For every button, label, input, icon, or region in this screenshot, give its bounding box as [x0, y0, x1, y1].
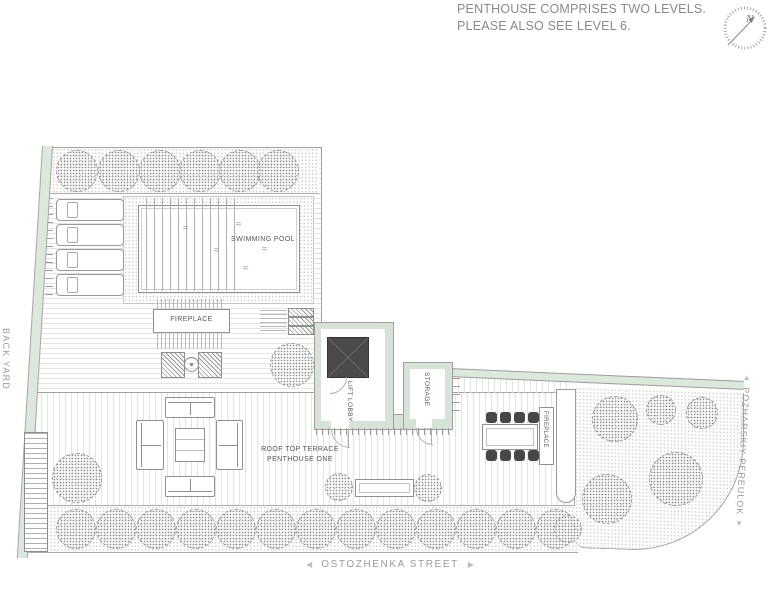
lounger-headrest: [67, 202, 78, 218]
bench: [288, 326, 314, 335]
roof-plan-drawing: ≈ ≈ ≈ ≈ ≈ SWIMMING POOL FIREPLACE LIFT L…: [0, 0, 775, 600]
lift-car: [327, 337, 369, 378]
lounger-headrest: [67, 252, 78, 268]
coffee-table: [175, 428, 205, 462]
dining-chair: [528, 450, 539, 461]
tree-icon: [592, 396, 638, 442]
tree-icon: [270, 343, 314, 387]
armchair: [198, 352, 222, 378]
sofa: [216, 420, 243, 470]
bench: [288, 317, 314, 326]
tree-icon: [56, 509, 96, 549]
sofa: [165, 397, 215, 418]
bench: [288, 308, 314, 317]
sun-lounger: [56, 199, 124, 221]
pozharskiy-text: POZHARSKIY PEREULOK: [734, 387, 751, 516]
arrow-left-icon: ◀: [306, 561, 312, 569]
tree-icon: [52, 453, 102, 503]
tree-icon: [56, 150, 98, 192]
sun-lounger: [56, 249, 124, 271]
tree-icon: [219, 150, 261, 192]
pool-lane-lines: [146, 198, 238, 291]
street-label-ostozhenka: ◀ OSTOZHENKA STREET ▶: [280, 559, 500, 570]
terrace-label-line1: ROOF TOP TERRACE: [245, 446, 355, 453]
tree-icon: [296, 509, 336, 549]
sun-lounger: [56, 224, 124, 246]
sofa-cushion-divider: [190, 479, 191, 492]
sofa-cushion-divider: [219, 445, 238, 446]
swimming-pool-label: SWIMMING POOL: [228, 236, 298, 243]
water-icon: ≈: [243, 266, 249, 272]
tree-icon: [216, 509, 256, 549]
sofa-cushion-divider: [190, 402, 191, 415]
storage-label: STORAGE: [423, 372, 430, 406]
trellis: [24, 432, 48, 552]
sun-lounger: [56, 274, 124, 296]
dining-chair: [486, 412, 497, 423]
arrow-right-icon: ▶: [468, 561, 474, 569]
edge-planter: [556, 389, 576, 503]
tree-icon: [257, 150, 299, 192]
planter-box: [355, 479, 414, 497]
fire-pit: [184, 357, 199, 372]
tree-icon: [136, 509, 176, 549]
armchair: [161, 352, 185, 378]
tree-icon: [649, 452, 703, 506]
compass-north-label: N: [745, 13, 754, 25]
bench-step-lines: [260, 310, 287, 331]
street-label-back-yard: BACK YARD: [1, 328, 11, 390]
sofa: [136, 420, 164, 470]
note-block: PENTHOUSE COMPRISES TWO LEVELS. PLEASE A…: [457, 1, 706, 35]
dining-chair: [528, 412, 539, 423]
storage-door-gap: [416, 419, 432, 428]
tree-icon: [686, 397, 718, 429]
dining-chair: [514, 412, 525, 423]
water-icon: ≈: [214, 248, 220, 254]
lift-lobby-label: LIFT LOBBY: [346, 381, 353, 422]
tree-icon: [176, 509, 216, 549]
wall-hatch-ticks: [316, 428, 450, 435]
terrace-label-line2: PENTHOUSE ONE: [245, 456, 355, 463]
sofa-cushion-divider: [141, 445, 161, 446]
tree-icon: [646, 395, 676, 425]
tree-icon: [98, 150, 140, 192]
tree-icon: [456, 509, 496, 549]
dining-table: [482, 424, 538, 450]
tree-icon: [376, 509, 416, 549]
tree-icon: [496, 509, 536, 549]
tree-icon: [416, 509, 456, 549]
dining-chair: [500, 450, 511, 461]
lift-cross-icon: [328, 338, 368, 377]
water-icon: ≈: [183, 226, 189, 232]
compass-icon: N: [718, 2, 773, 54]
water-icon: ≈: [262, 247, 268, 253]
arrow-up-icon: ▲: [742, 374, 750, 382]
fireplace-dining-label: FIREPLACE: [542, 411, 548, 448]
fireplace-hatch-top: [157, 299, 223, 309]
lounger-headrest: [67, 227, 78, 243]
note-line2: PLEASE ALSO SEE LEVEL 6.: [457, 18, 706, 35]
sofa: [165, 476, 215, 497]
tree-icon: [414, 474, 442, 502]
dining-chair: [500, 412, 511, 423]
storage-side-ticks: [453, 378, 460, 418]
arrow-down-icon: ▼: [735, 520, 743, 528]
tree-icon: [336, 509, 376, 549]
fireplace-hatch-bottom: [157, 332, 223, 349]
ostozhenka-text: OSTOZHENKA STREET: [321, 559, 459, 570]
note-line1: PENTHOUSE COMPRISES TWO LEVELS.: [457, 1, 706, 18]
lounger-headrest: [67, 277, 78, 293]
tree-icon: [554, 515, 582, 543]
tree-icon: [256, 509, 296, 549]
dining-chair: [486, 450, 497, 461]
water-icon: ≈: [236, 222, 242, 228]
tree-icon: [96, 509, 136, 549]
tree-icon: [179, 150, 221, 192]
tree-icon: [139, 150, 181, 192]
tree-icon: [325, 473, 353, 501]
dining-chair: [514, 450, 525, 461]
tree-icon: [582, 474, 632, 524]
fireplace-lounge-label: FIREPLACE: [153, 316, 230, 323]
